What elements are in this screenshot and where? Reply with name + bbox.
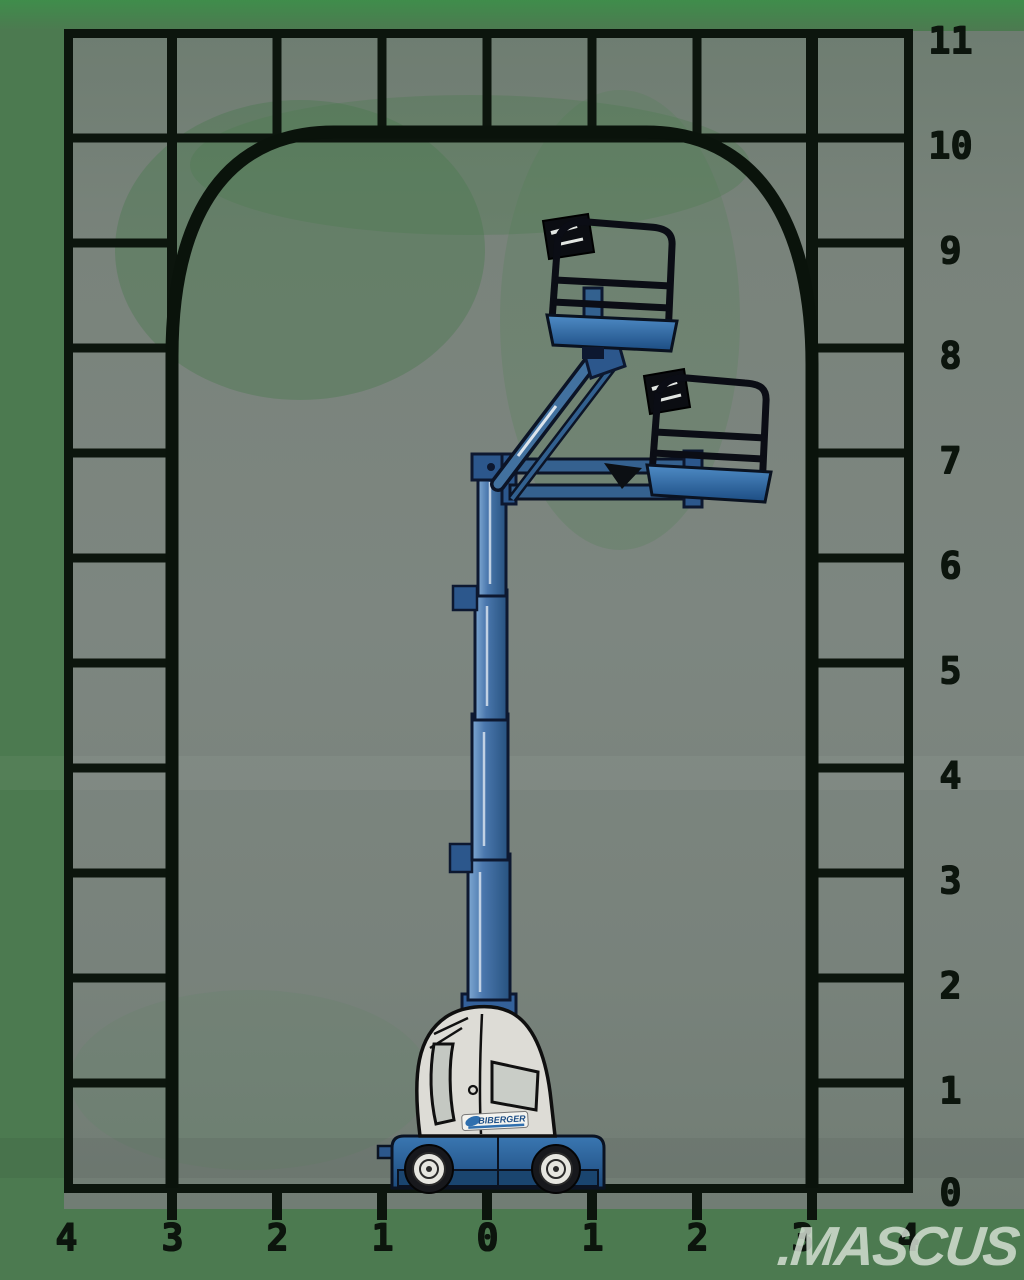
wheel-left <box>405 1145 453 1193</box>
bottom-axis-label: 0 <box>467 1216 507 1260</box>
right-axis-label: 4 <box>926 754 974 798</box>
diagram-canvas: BIBERGER <box>0 0 1024 1280</box>
bottom-axis-label: 2 <box>257 1216 297 1260</box>
right-axis-label: 5 <box>926 649 974 693</box>
right-axis-label: 3 <box>926 859 974 903</box>
right-axis-label: 0 <box>926 1171 974 1215</box>
mascus-watermark: .MASCUS <box>775 1214 1021 1278</box>
right-axis-label: 7 <box>926 439 974 483</box>
bottom-axis-label: 2 <box>677 1216 717 1260</box>
bottom-axis-label: 1 <box>362 1216 402 1260</box>
brand-logo: BIBERGER <box>462 1111 529 1130</box>
right-axis-label: 8 <box>926 334 974 378</box>
right-axis-label: 1 <box>926 1069 974 1113</box>
platform-floor <box>647 465 771 502</box>
right-axis-label: 11 <box>926 19 974 63</box>
bottom-axis-label: 4 <box>46 1216 86 1260</box>
wheel-right <box>532 1145 580 1193</box>
turret-window-right <box>492 1062 538 1110</box>
right-axis-label: 9 <box>926 229 974 273</box>
platform-floor <box>547 315 677 351</box>
bottom-axis-label: 3 <box>152 1216 192 1260</box>
right-axis-label: 10 <box>926 124 974 168</box>
right-axis-label: 6 <box>926 544 974 588</box>
right-axis-label: 2 <box>926 964 974 1008</box>
bottom-axis-label: 1 <box>572 1216 612 1260</box>
envelope-diagram: BIBERGER 11 10 9 8 7 6 5 4 3 2 1 0 <box>0 0 1024 1280</box>
turret-window-left <box>431 1044 454 1124</box>
